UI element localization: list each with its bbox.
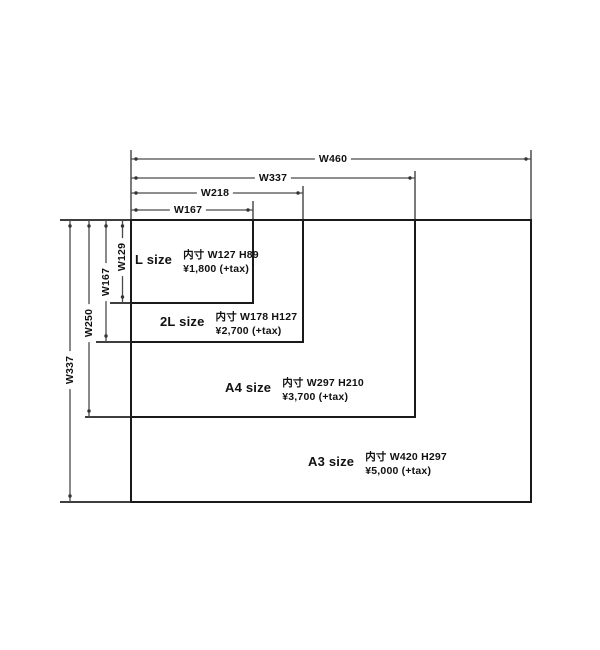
frame-price-a3: ¥5,000 (+tax) [365, 464, 447, 478]
frame-inner-size-2l: 内寸 W178 H127 [216, 310, 298, 324]
width-dim-label-w167: W167 [170, 205, 206, 216]
frame-inner-size-a4: 内寸 W297 H210 [282, 376, 364, 390]
height-dim-label-w250: W250 [84, 304, 95, 342]
frame-details-2l: 内寸 W178 H127 ¥2,700 (+tax) [216, 310, 298, 338]
frame-price-a4: ¥3,700 (+tax) [282, 390, 364, 404]
frame-info-l: L size 内寸 W127 H89 ¥1,800 (+tax) [135, 248, 259, 276]
dim-end-dots [68, 157, 527, 497]
frame-label-a4: A4 size [225, 380, 271, 395]
frame-price-2l: ¥2,700 (+tax) [216, 324, 298, 338]
frame-info-a3: A3 size 内寸 W420 H297 ¥5,000 (+tax) [308, 450, 447, 478]
frame-size-diagram: W460 W337 W218 W167 W337 W250 W167 W129 … [0, 0, 600, 650]
frame-label-l: L size [135, 252, 172, 267]
width-dim-label-w218: W218 [197, 188, 233, 199]
frame-label-2l: 2L size [160, 314, 205, 329]
frame-label-a3: A3 size [308, 454, 354, 469]
frame-details-a4: 内寸 W297 H210 ¥3,700 (+tax) [282, 376, 364, 404]
height-dim-label-w337: W337 [65, 351, 76, 389]
frame-price-l: ¥1,800 (+tax) [183, 262, 259, 276]
frame-details-l: 内寸 W127 H89 ¥1,800 (+tax) [183, 248, 259, 276]
frame-details-a3: 内寸 W420 H297 ¥5,000 (+tax) [365, 450, 447, 478]
frame-inner-size-l: 内寸 W127 H89 [183, 248, 259, 262]
frame-info-2l: 2L size 内寸 W178 H127 ¥2,700 (+tax) [160, 310, 297, 338]
width-dim-label-w337: W337 [255, 173, 291, 184]
height-dim-label-w167: W167 [101, 263, 112, 301]
frame-info-a4: A4 size 内寸 W297 H210 ¥3,700 (+tax) [225, 376, 364, 404]
frame-inner-size-a3: 内寸 W420 H297 [365, 450, 447, 464]
height-dim-label-w129: W129 [117, 238, 128, 276]
width-dim-label-w460: W460 [315, 154, 351, 165]
